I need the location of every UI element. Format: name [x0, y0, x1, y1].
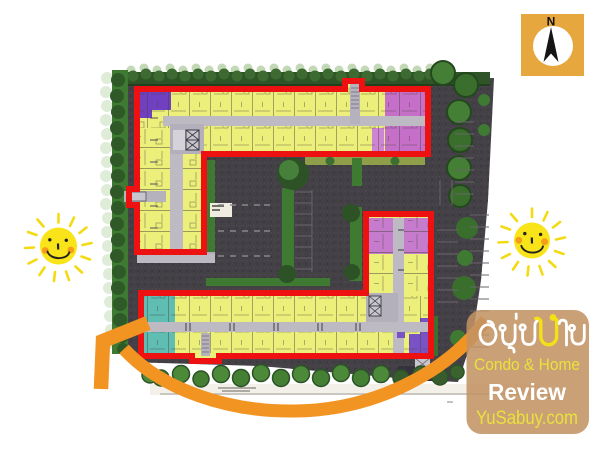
svg-text:Condo & Home: Condo & Home: [474, 355, 580, 374]
svg-text:YuSabuy.com: YuSabuy.com: [476, 408, 578, 429]
svg-text:Review: Review: [488, 379, 566, 405]
svg-text:N: N: [547, 15, 556, 29]
